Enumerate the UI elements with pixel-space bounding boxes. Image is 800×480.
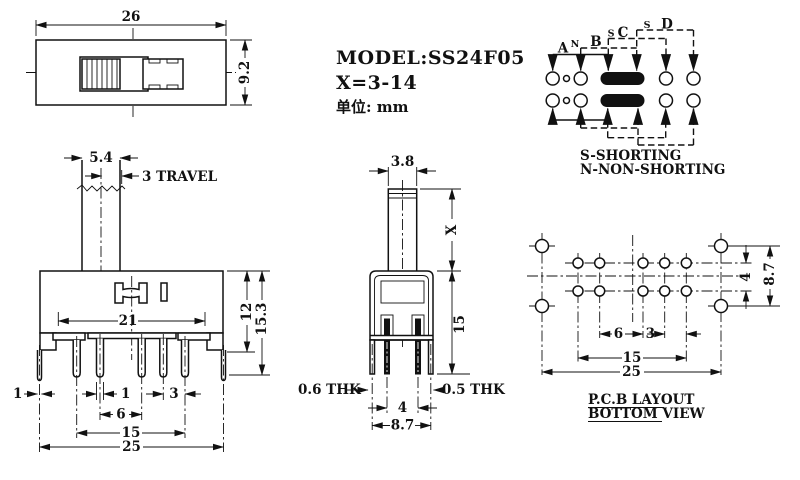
pcb-layout: 6 3 15 25 4 8.7 P.C.B LAYOUT BOTTOM VIEW [527,233,780,422]
drawing-canvas: 26 9.2 MODEL:SS24F05 X=3-14 单位: mm [0,0,800,480]
schematic: A N B S C S D S-SHORTING N-NON-SHORTING [546,17,725,179]
legend-non-shorting: N-NON-SHORTING [580,162,725,178]
unit-label: 单位: mm [336,98,409,116]
pcb-dim-row-gap: 4 [738,272,754,281]
pcb-dim-span25: 25 [622,364,641,380]
dim-pin-pitch: 6 [116,407,125,423]
dim-body-height-side: 15 [452,315,468,334]
shorting-bar-bottom [601,95,644,107]
dim-body-height: 12 [239,303,255,322]
shaft-range: X=3-14 [336,72,417,94]
dim-stem-width: 3.8 [391,154,415,170]
shorting-bar-top [601,73,644,85]
dim-frame-width: 21 [119,313,138,329]
pcb-caption-line2: BOTTOM VIEW [588,406,706,422]
position-label-s1: S [608,29,615,40]
position-label-n: N [571,39,580,50]
position-label-b: B [590,34,601,50]
terminal-pins [73,339,188,378]
side-view: 3.8 X 15 0.6 THK 0.5 THK 4 8.7 [298,154,506,434]
pcb-dim-pitch6: 6 [614,326,623,342]
pcb-dim-mount-gap: 8.7 [762,262,778,286]
dim-body-width: 8.7 [391,418,415,434]
dim-top-height: 9.2 [237,61,253,85]
position-label-a: A [557,41,569,57]
pin-holes [573,258,691,296]
dim-bracket-thk: 1 [13,386,22,402]
top-view: 26 9.2 [26,9,253,117]
drawing-sheet: 26 9.2 MODEL:SS24F05 X=3-14 单位: mm [0,0,800,480]
position-label-c: C [618,25,629,41]
dim-thk-right: 0.5 THK [442,382,506,398]
dim-stem-height: X [444,224,460,235]
dim-bracket-span: 25 [122,439,141,455]
dim-top-width: 26 [122,9,141,25]
dim-knob-width: 5.4 [89,150,113,166]
dim-pin-gap: 3 [169,386,178,402]
model-number: MODEL:SS24F05 [336,47,525,69]
dim-pin-gap-side: 4 [398,400,407,416]
position-label-d: D [661,17,673,33]
dim-travel: 3 TRAVEL [142,169,218,185]
position-label-s2: S [644,20,651,31]
dim-total-height: 15.3 [254,303,270,336]
front-view: 5.4 3 TRAVEL 21 12 15.3 1 1 3 6 [13,150,270,455]
dim-pin-width: 1 [121,386,130,402]
title-block: MODEL:SS24F05 X=3-14 单位: mm [336,47,525,116]
